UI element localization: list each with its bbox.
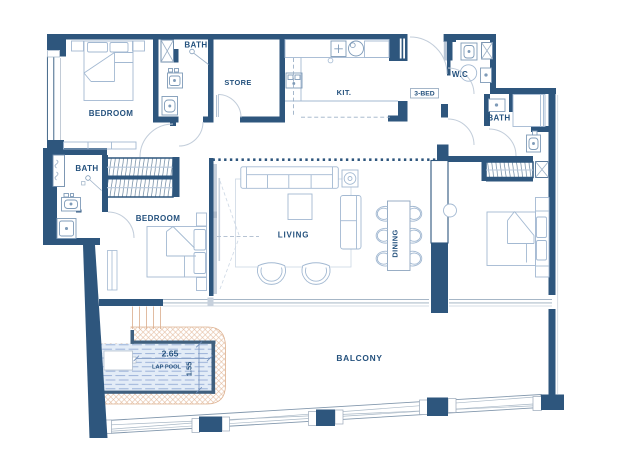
svg-text:DINING: DINING: [391, 229, 400, 257]
svg-text:LAP POOL: LAP POOL: [152, 365, 181, 371]
svg-text:BATH: BATH: [487, 114, 510, 123]
svg-text:BATH: BATH: [75, 164, 98, 173]
svg-text:BEDROOM: BEDROOM: [136, 214, 181, 223]
svg-text:3-BED: 3-BED: [414, 91, 434, 98]
svg-text:W.C: W.C: [452, 70, 468, 79]
svg-text:BEDROOM: BEDROOM: [89, 109, 134, 118]
svg-text:KIT.: KIT.: [337, 88, 352, 97]
svg-text:STORE: STORE: [224, 78, 251, 87]
svg-text:2.65: 2.65: [162, 348, 179, 358]
svg-text:BALCONY: BALCONY: [336, 353, 382, 363]
svg-text:1.55: 1.55: [185, 362, 194, 376]
svg-text:BATH: BATH: [184, 41, 207, 50]
svg-text:LIVING: LIVING: [278, 231, 309, 240]
